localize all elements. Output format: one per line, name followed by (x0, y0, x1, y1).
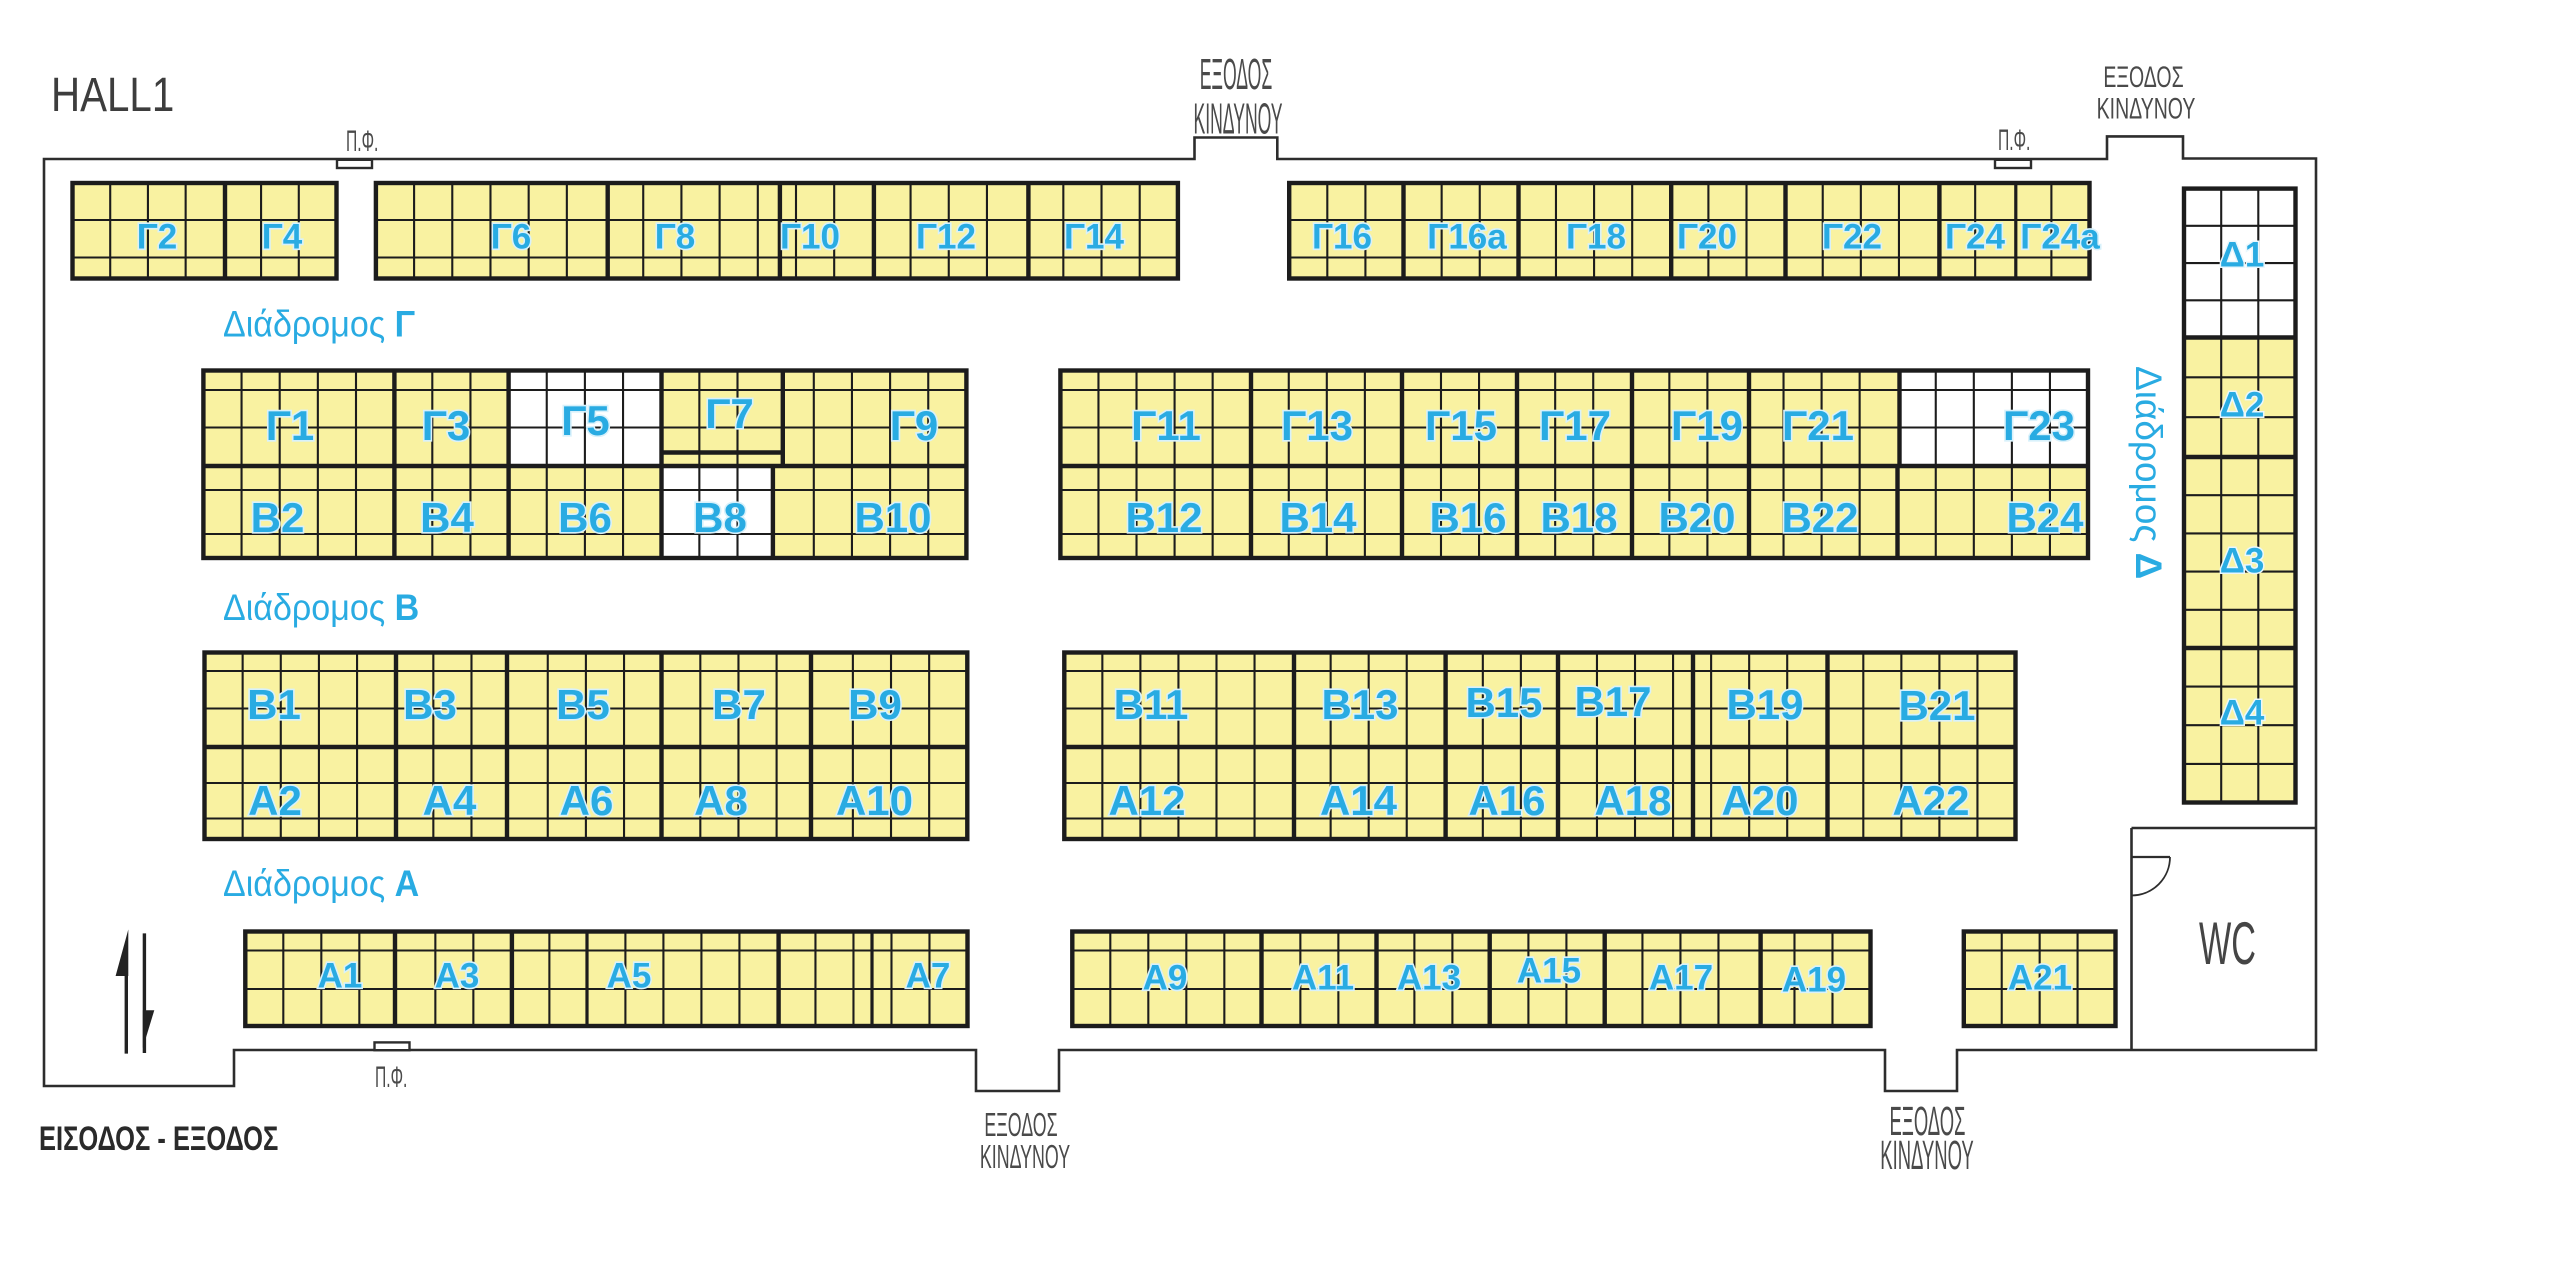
svg-text:B4: B4 (420, 494, 474, 541)
svg-text:A4: A4 (423, 777, 477, 824)
svg-text:B1: B1 (247, 681, 301, 728)
svg-text:B5: B5 (556, 681, 610, 728)
svg-text:Γ13: Γ13 (1281, 402, 1353, 449)
svg-text:Γ8: Γ8 (655, 218, 696, 257)
svg-text:A11: A11 (1292, 959, 1354, 998)
svg-text:Γ19: Γ19 (1671, 402, 1743, 449)
svg-text:Γ2: Γ2 (137, 218, 178, 257)
svg-text:B22: B22 (1781, 494, 1858, 541)
svg-text:A9: A9 (1143, 959, 1188, 998)
svg-text:A21: A21 (2008, 959, 2072, 998)
svg-text:Γ24a: Γ24a (2020, 218, 2100, 257)
svg-text:Γ7: Γ7 (705, 390, 754, 437)
svg-text:B24: B24 (2006, 494, 2084, 541)
svg-text:Γ1: Γ1 (266, 402, 315, 449)
svg-text:B14: B14 (1279, 494, 1357, 541)
svg-text:Γ23: Γ23 (2003, 402, 2075, 449)
svg-text:Γ24: Γ24 (1945, 218, 2006, 257)
svg-text:Δ3: Δ3 (2220, 542, 2265, 581)
svg-text:B3: B3 (403, 681, 457, 728)
svg-text:B19: B19 (1726, 681, 1803, 728)
svg-text:A13: A13 (1397, 959, 1461, 998)
svg-text:Π.Φ.: Π.Φ. (1998, 124, 2030, 158)
svg-text:ΕΙΣΟΔΟΣ - ΕΞΟΔΟΣ: ΕΙΣΟΔΟΣ - ΕΞΟΔΟΣ (39, 1121, 278, 1158)
svg-text:A8: A8 (694, 777, 748, 824)
svg-text:Γ17: Γ17 (1539, 402, 1611, 449)
svg-text:Π.Φ.: Π.Φ. (375, 1061, 407, 1095)
svg-text:Γ22: Γ22 (1822, 218, 1882, 257)
svg-text:B15: B15 (1465, 679, 1542, 726)
svg-text:B7: B7 (712, 681, 766, 728)
svg-text:A7: A7 (906, 957, 951, 996)
svg-text:A14: A14 (1320, 777, 1398, 824)
svg-text:Γ16a: Γ16a (1427, 218, 1507, 257)
svg-text:B6: B6 (558, 494, 612, 541)
svg-text:Διάδρομος A: Διάδρομος A (223, 863, 419, 905)
svg-text:A3: A3 (435, 957, 480, 996)
svg-text:B12: B12 (1125, 494, 1202, 541)
svg-text:Γ6: Γ6 (491, 218, 532, 257)
svg-text:Π.Φ.: Π.Φ. (346, 125, 378, 159)
svg-text:ΚΙΝΔΥΝΟΥ: ΚΙΝΔΥΝΟΥ (1193, 95, 1282, 144)
svg-text:Δ2: Δ2 (2220, 386, 2265, 425)
svg-text:ΕΞΟΔΟΣ: ΕΞΟΔΟΣ (1200, 51, 1272, 100)
svg-text:Γ18: Γ18 (1566, 218, 1626, 257)
svg-text:ΕΞΟΔΟΣ: ΕΞΟΔΟΣ (2103, 61, 2183, 94)
svg-text:B20: B20 (1658, 494, 1735, 541)
svg-text:B11: B11 (1114, 681, 1189, 728)
svg-text:B9: B9 (848, 681, 902, 728)
svg-text:A19: A19 (1782, 961, 1846, 1000)
svg-text:HALL1: HALL1 (51, 69, 174, 122)
svg-text:Γ12: Γ12 (916, 218, 976, 257)
svg-text:A12: A12 (1108, 777, 1185, 824)
svg-text:Γ11: Γ11 (1131, 402, 1201, 449)
svg-text:B8: B8 (693, 494, 747, 541)
svg-text:Γ14: Γ14 (1064, 218, 1125, 257)
svg-text:B21: B21 (1898, 682, 1975, 729)
svg-text:A1: A1 (318, 957, 363, 996)
svg-text:B10: B10 (854, 494, 931, 541)
svg-text:ΚΙΝΔΥΝΟΥ: ΚΙΝΔΥΝΟΥ (980, 1138, 1070, 1175)
svg-text:ΚΙΝΔΥΝΟΥ: ΚΙΝΔΥΝΟΥ (2097, 92, 2196, 125)
svg-text:WC: WC (2199, 911, 2256, 977)
svg-text:B13: B13 (1321, 681, 1398, 728)
svg-text:A20: A20 (1721, 777, 1798, 824)
svg-text:A15: A15 (1517, 952, 1581, 991)
svg-text:A5: A5 (607, 957, 652, 996)
svg-text:A17: A17 (1649, 959, 1713, 998)
svg-text:Γ20: Γ20 (1677, 218, 1737, 257)
svg-text:B17: B17 (1574, 678, 1651, 725)
svg-text:A2: A2 (248, 777, 302, 824)
svg-text:Διάδρομος B: Διάδρομος B (223, 587, 419, 629)
svg-text:A6: A6 (560, 777, 614, 824)
svg-text:A10: A10 (836, 777, 913, 824)
svg-text:Γ4: Γ4 (262, 218, 303, 257)
svg-text:B16: B16 (1429, 494, 1506, 541)
svg-text:A16: A16 (1468, 777, 1545, 824)
svg-text:Διάδρομος Δ: Διάδρομος Δ (2128, 366, 2169, 579)
svg-text:Δ4: Δ4 (2220, 694, 2265, 733)
svg-text:Διάδρομος Γ: Διάδρομος Γ (223, 303, 415, 345)
svg-text:Γ15: Γ15 (1425, 402, 1497, 449)
svg-text:Δ1: Δ1 (2220, 236, 2265, 275)
svg-text:Γ16: Γ16 (1312, 218, 1372, 257)
svg-text:B18: B18 (1540, 494, 1617, 541)
svg-text:Γ9: Γ9 (890, 402, 939, 449)
svg-text:Γ21: Γ21 (1782, 402, 1854, 449)
svg-text:Γ5: Γ5 (561, 397, 610, 444)
svg-text:Γ10: Γ10 (780, 218, 840, 257)
svg-text:Γ3: Γ3 (422, 402, 471, 449)
svg-text:B2: B2 (251, 494, 305, 541)
svg-text:ΚΙΝΔΥΝΟΥ: ΚΙΝΔΥΝΟΥ (1880, 1132, 1973, 1178)
svg-text:A18: A18 (1594, 777, 1671, 824)
svg-text:A22: A22 (1892, 777, 1969, 824)
